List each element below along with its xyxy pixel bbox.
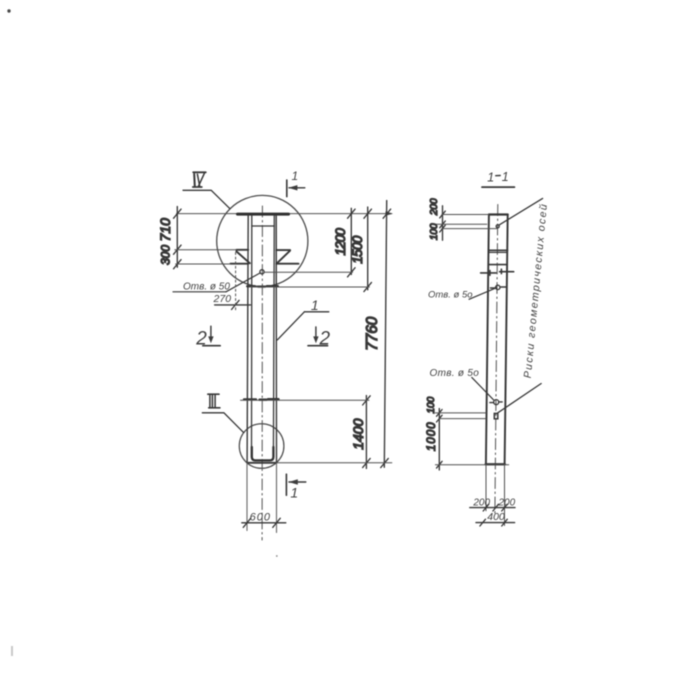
svg-text:1500: 1500 — [350, 235, 365, 263]
svg-text:400: 400 — [487, 511, 505, 523]
svg-text:1: 1 — [487, 170, 494, 184]
svg-text:1: 1 — [311, 297, 319, 313]
svg-text:200: 200 — [497, 498, 515, 509]
svg-text:270: 270 — [213, 293, 232, 305]
svg-text:1: 1 — [290, 484, 298, 500]
svg-text:200: 200 — [429, 198, 440, 216]
svg-text:1200: 1200 — [333, 228, 348, 256]
svg-text:300: 300 — [158, 245, 172, 265]
svg-text:710: 710 — [157, 218, 173, 242]
svg-text:200: 200 — [472, 498, 490, 509]
svg-text:600: 600 — [250, 512, 271, 524]
svg-text:7760: 7760 — [364, 316, 381, 350]
svg-text:1: 1 — [291, 169, 298, 183]
svg-text:1000: 1000 — [426, 422, 438, 452]
svg-text:Отв. ø 5о: Отв. ø 5о — [428, 290, 473, 301]
svg-text:100: 100 — [429, 223, 440, 240]
svg-text:Отв. ø 50: Отв. ø 50 — [183, 282, 230, 293]
svg-text:1: 1 — [502, 170, 509, 184]
svg-text:100: 100 — [426, 396, 437, 413]
svg-text:1400: 1400 — [350, 418, 366, 449]
